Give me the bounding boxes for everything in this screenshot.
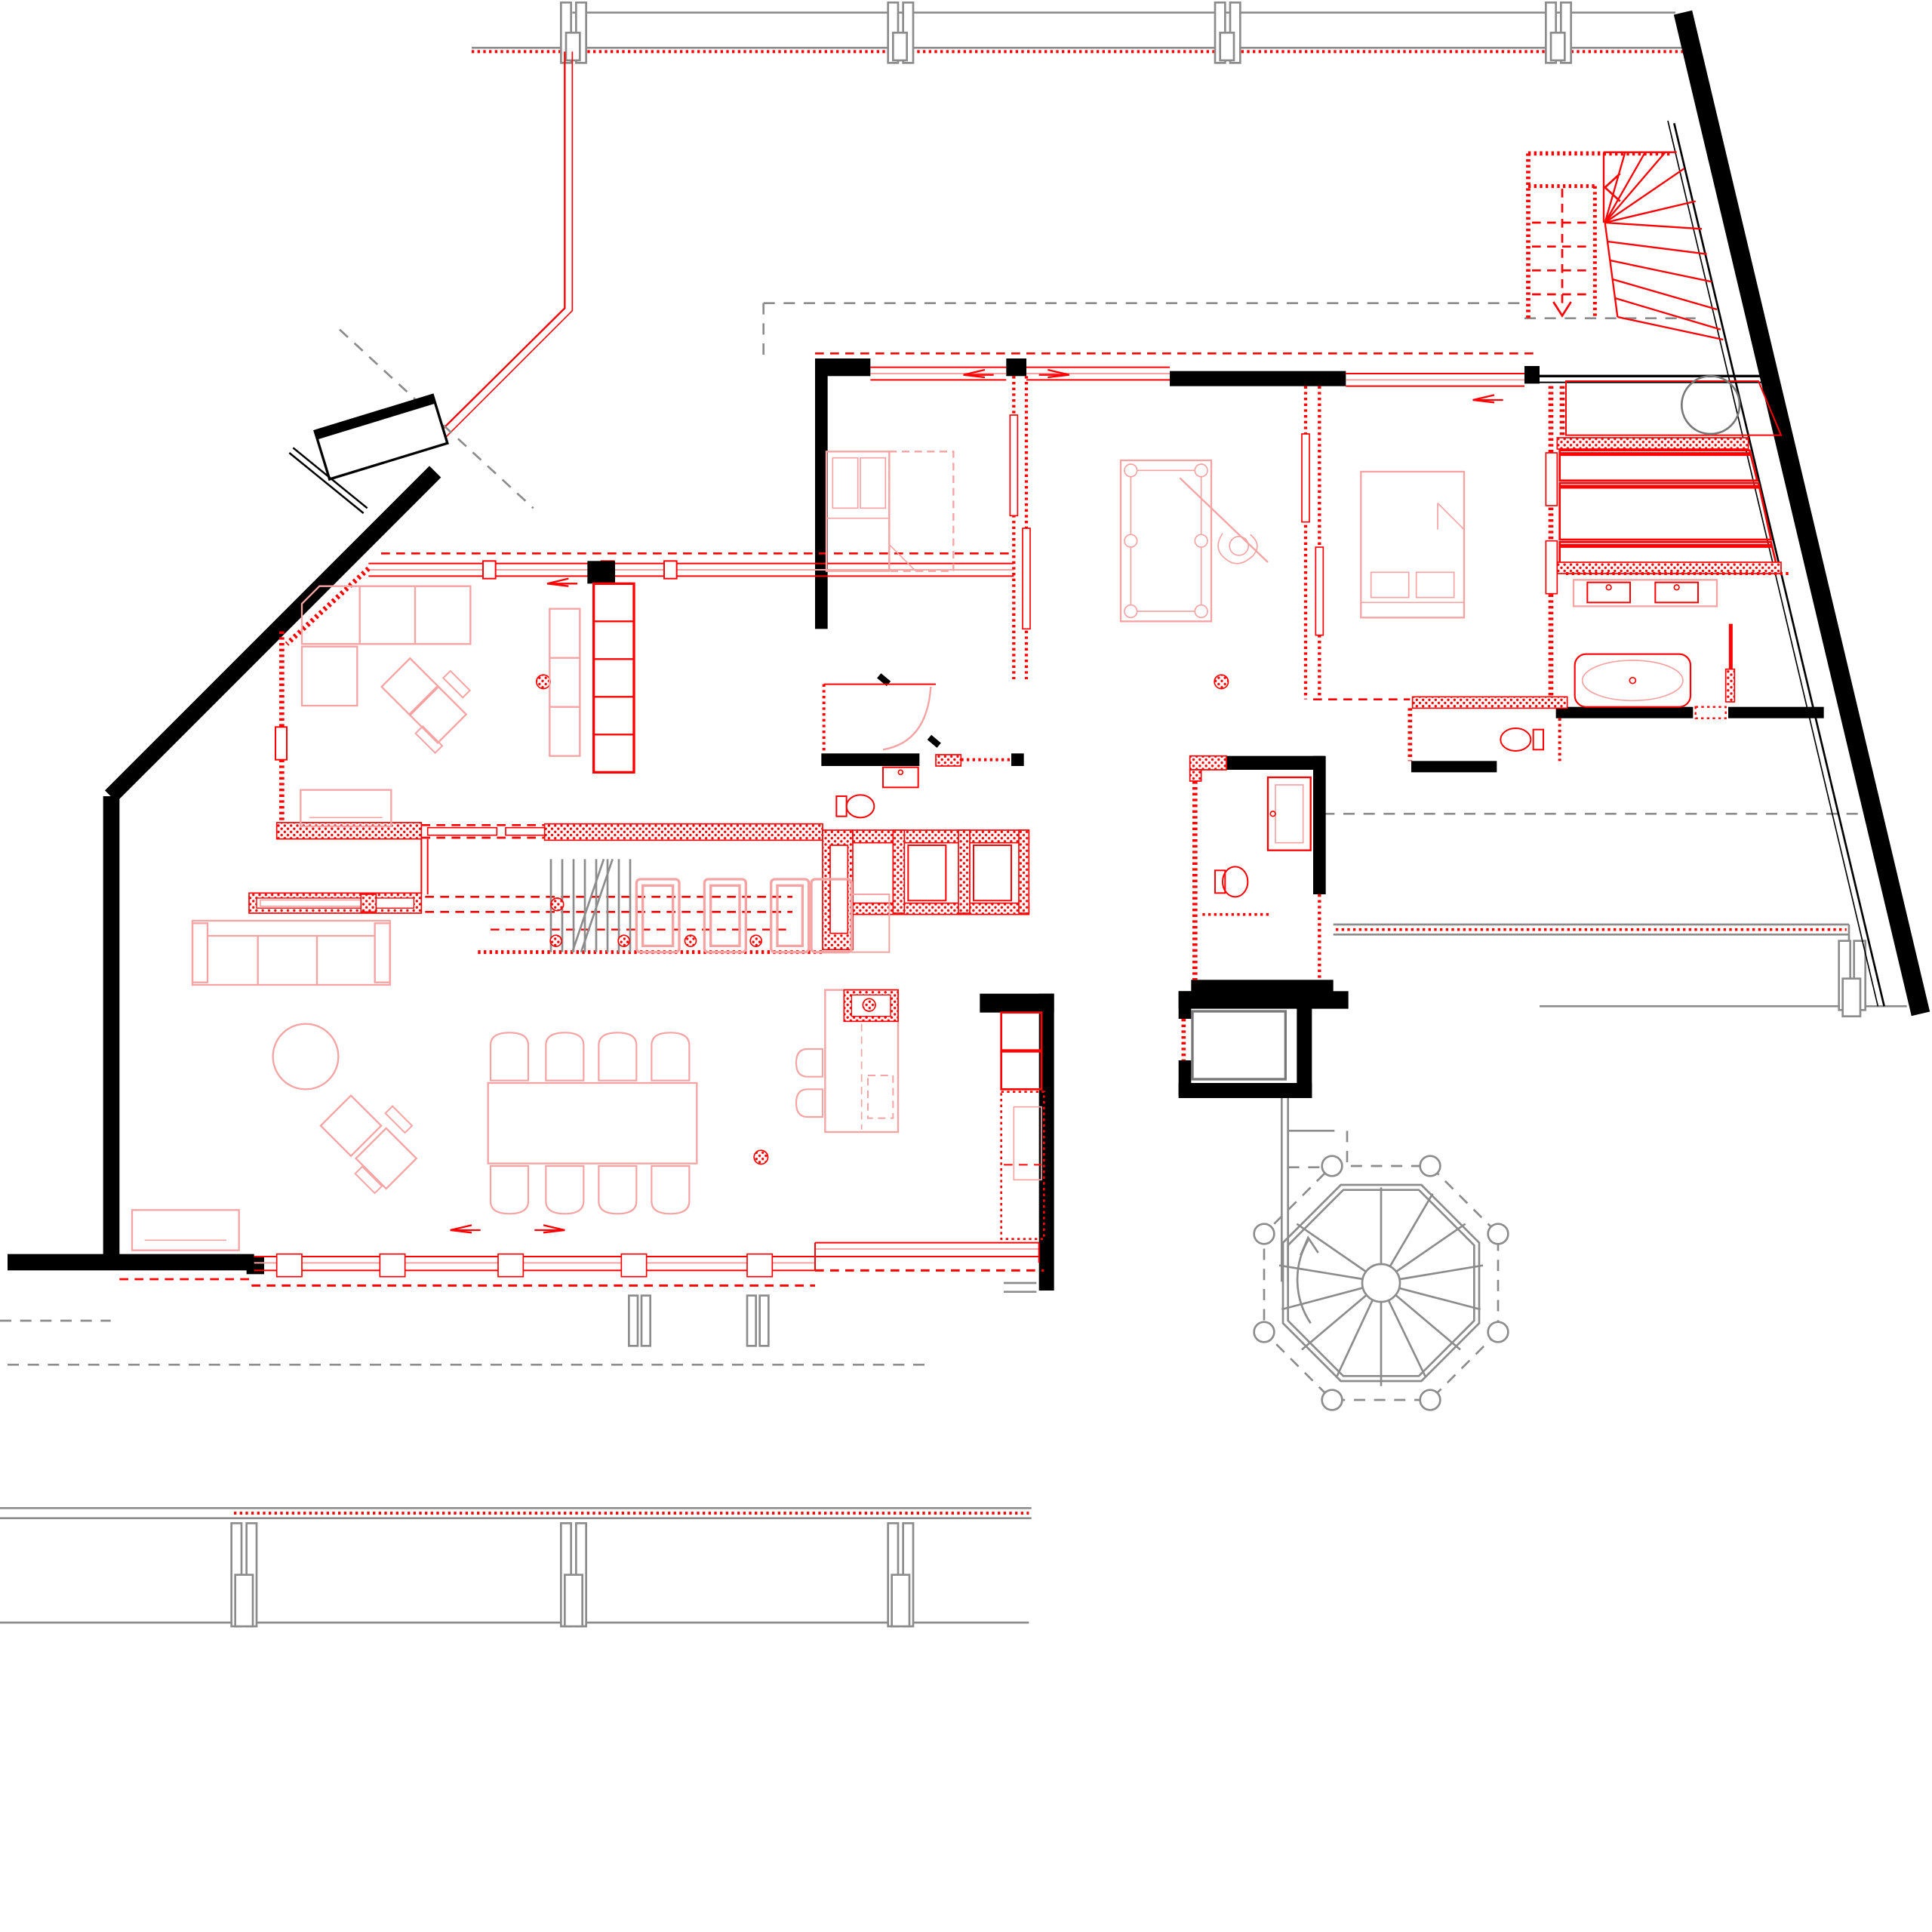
red-partitions [249,376,1791,1238]
dormer-bay-window [315,395,448,479]
player-head [1229,537,1248,555]
living-sideboard [132,1210,239,1250]
building-shell [0,2,1907,1626]
wc-2 [1313,697,1567,761]
ensuite-bath1 [824,673,1011,817]
wall-east-hall-1 [1556,707,1694,718]
wall-west [103,796,120,1263]
closet-cell-door-1 [908,845,946,900]
top-right-room [1562,376,1781,438]
toilet-wc2 [1500,728,1531,751]
bar-stool-2 [796,1089,823,1117]
living-sofa [192,921,390,985]
closet-door-1 [1546,453,1557,506]
columns [537,675,1229,1164]
slide-arrows-south [451,1225,565,1232]
kitchen-appliances [636,879,889,952]
player-body [1218,534,1257,564]
pocket-panel-3 [1302,434,1309,522]
wall-family-south [277,823,422,839]
bathtub [1575,654,1690,707]
pocket-panel-1 [1010,415,1017,515]
bath-door-gap [1696,707,1726,718]
door-symbol-2 [928,735,941,748]
bath1-toilet-tank [836,796,846,817]
wall-wcB-north [1226,756,1324,770]
entry-porch [1004,1098,1347,1292]
down-arrow [1553,302,1571,315]
shower-cabin [1268,777,1311,851]
window-bands [251,353,1540,1285]
dressing-band-top [1557,438,1748,449]
pocket-panel-2 [1023,528,1030,629]
terrace-posts [232,1523,913,1626]
round-pouf [273,1024,339,1090]
pool-table [1121,460,1268,621]
shower-room-b [1190,756,1320,980]
pool-cue [1180,478,1268,562]
floor-plan-page [0,0,1932,1932]
pier-north-3 [1524,366,1540,383]
bath1-toilet [847,795,875,817]
bed-2 [1361,472,1464,617]
kitchen-island [796,990,898,1132]
sink-1-tap [1606,585,1611,590]
master-bath [1566,574,1791,718]
winder-staircase [1528,152,1723,340]
shower-pier [1726,669,1735,702]
pier-south-west [247,1257,264,1274]
bed-1 [826,451,953,571]
railing-posts-mid [629,1296,768,1346]
wall-wc2-south [1411,761,1497,772]
roof-ridge-red [432,51,565,440]
wall-south-west [8,1254,254,1271]
family-armchairs [382,658,470,752]
window-family [368,561,1014,578]
dressing-shelves [1560,451,1777,569]
wall-wcB-south [1191,980,1333,995]
lounge-chairs [321,1096,417,1193]
window-west-small [275,727,287,759]
sliding-panel-1 [428,828,497,835]
wall-east-hall-2 [1728,707,1824,718]
closet-door-2 [1546,541,1557,594]
entry-closets [1001,1013,1044,1239]
wall-north-mid [1170,371,1346,386]
dressing-band-bottom [1557,562,1781,574]
dining-chairs [491,1032,689,1214]
pier-bath1 [1011,753,1024,766]
pocket-panel-4 [1315,547,1323,635]
dining-set [488,1032,697,1214]
wall-diagonal-east [1683,13,1921,1014]
round-fixture [1681,376,1740,434]
elevator-cab [1192,1011,1285,1079]
bar-stool-1 [796,1049,823,1077]
structural-walls [8,13,1921,1291]
family-sideboard [300,790,391,826]
upper-flight-dashed [1532,189,1592,304]
pier-north-2 [1006,358,1026,376]
family-room-sofa [302,586,580,756]
south-mullions [277,1254,773,1277]
spiral-arrow-arc [1297,1240,1311,1323]
bookshelf [587,561,634,772]
reference-lines [0,1279,251,1321]
dining-table [488,1083,697,1164]
wall-diagonal-west [111,472,435,796]
winder-treads [1604,152,1723,340]
kitchen-closet-band [478,824,1029,952]
toilet-b [1223,866,1247,897]
wall-bath1 [821,753,919,766]
roof-ridge-red-2 [439,51,573,444]
spiral-newel [1362,1264,1400,1302]
shower-glass [883,687,931,749]
shower-cabin-inner [1275,785,1303,843]
toilet-wc2-tank [1534,730,1543,750]
wall-wcB-east [1313,756,1326,894]
fireplace-band [249,893,421,913]
east-terrace-post [1839,941,1866,1017]
shower-knob [1270,811,1275,817]
spiral-staircase [1254,1156,1509,1411]
closet-cell-door-2 [974,845,1011,900]
slide-arrow-family [547,579,577,586]
floor-plan-canvas [0,0,1932,1932]
sink-2-tap [1674,585,1679,590]
